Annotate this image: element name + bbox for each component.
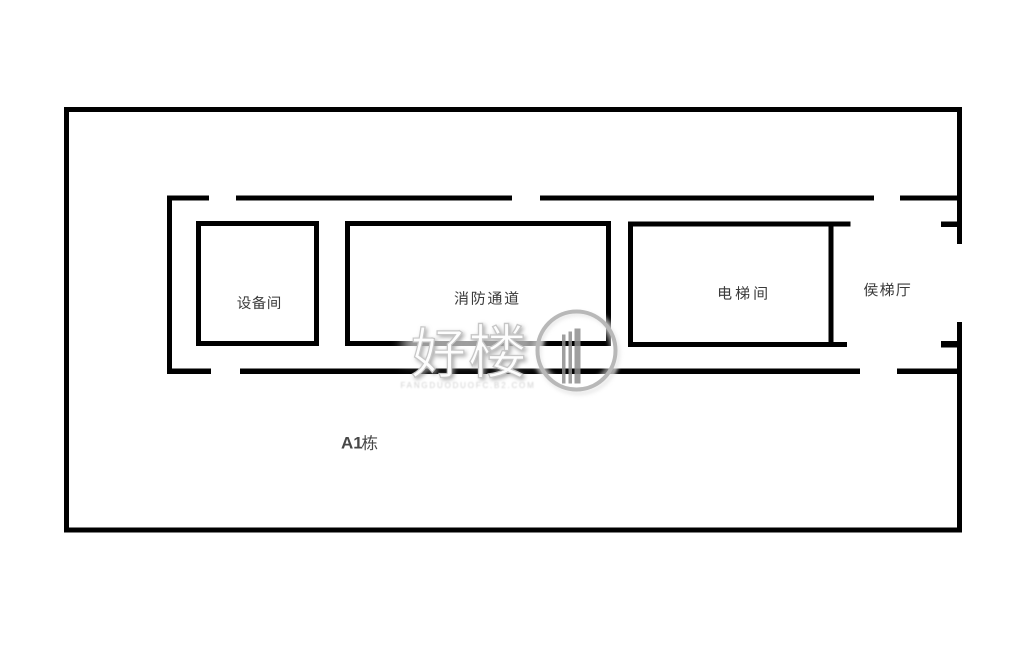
svg-text:A1: A1 [341,434,363,453]
svg-text:FANGDUODUOFC.B2.COM: FANGDUODUOFC.B2.COM [400,381,535,390]
